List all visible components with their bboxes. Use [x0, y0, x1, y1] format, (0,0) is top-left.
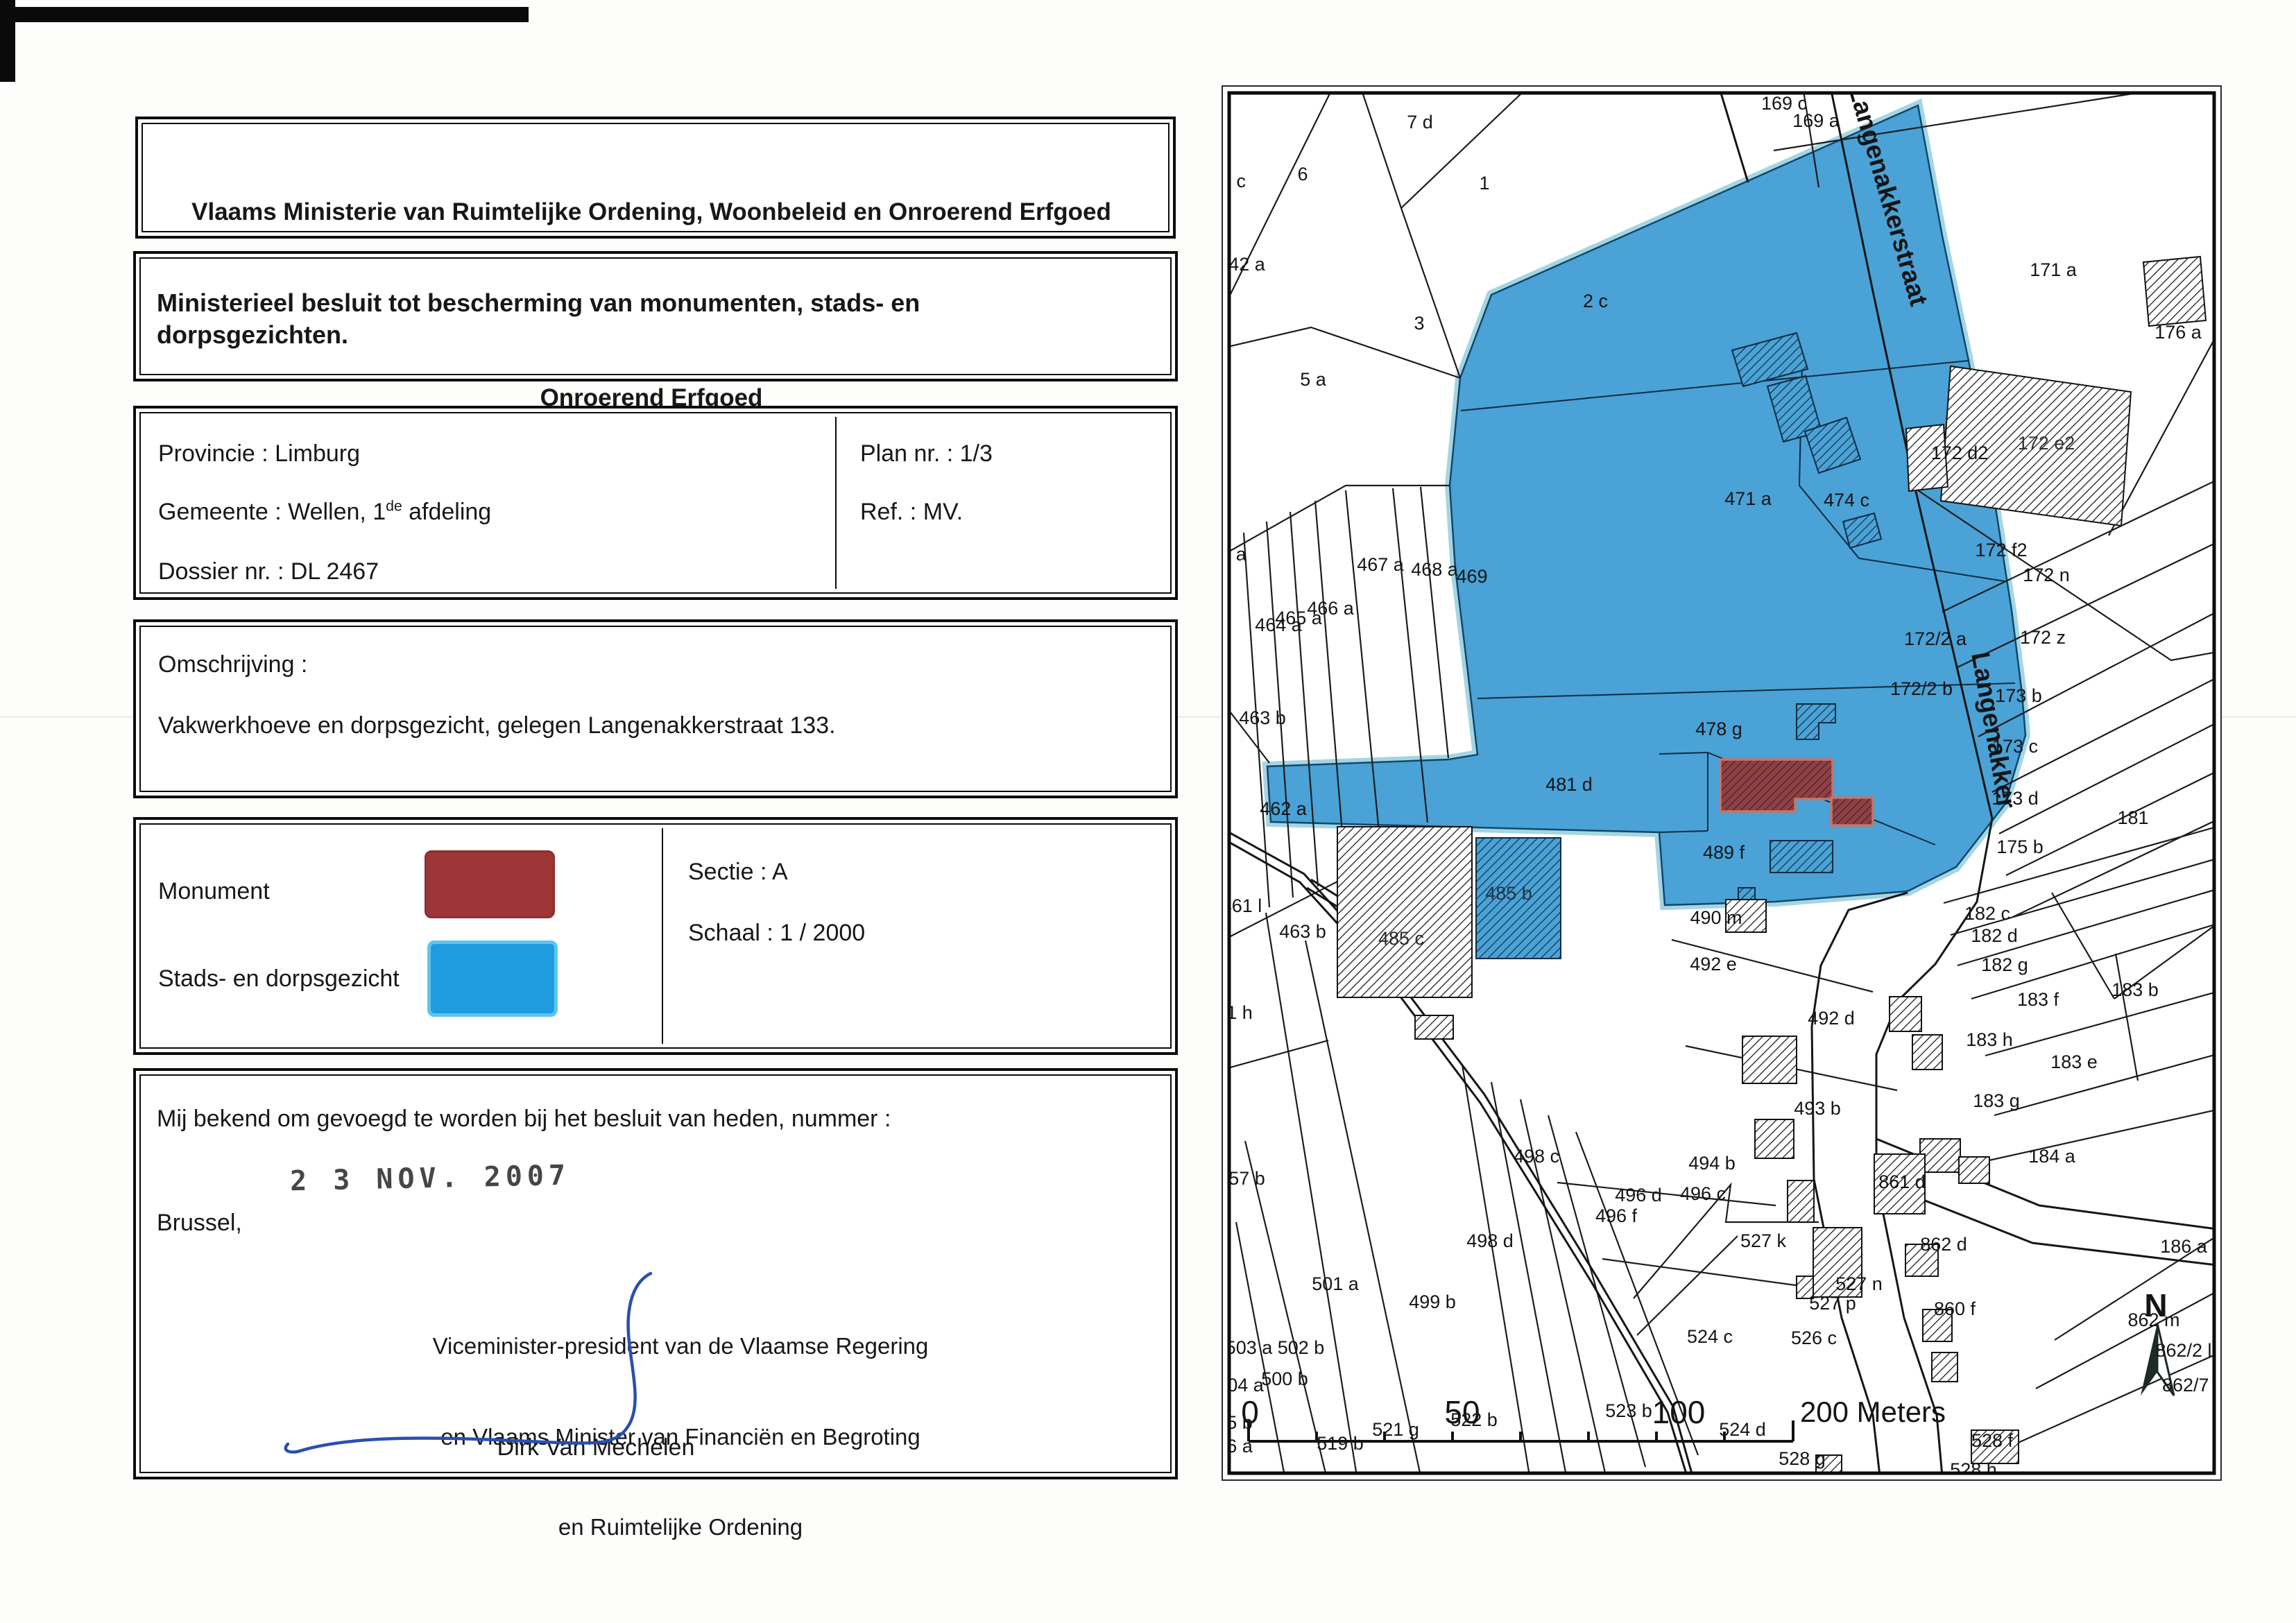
svg-text:183 e: 183 e: [2050, 1051, 2098, 1072]
building: [2143, 257, 2206, 326]
building: [1415, 1015, 1453, 1039]
svg-text:172/2 b: 172/2 b: [1890, 678, 1953, 699]
svg-text:169 a: 169 a: [1792, 110, 1840, 131]
svg-text:N: N: [2144, 1287, 2167, 1323]
svg-text:200 Meters: 200 Meters: [1800, 1396, 1946, 1428]
svg-text:183 g: 183 g: [1973, 1090, 2020, 1111]
building: [1742, 1036, 1797, 1083]
svg-text:5 a: 5 a: [1300, 369, 1327, 390]
svg-text:496 d: 496 d: [1615, 1185, 1662, 1205]
svg-text:182 g: 182 g: [1981, 954, 2028, 975]
svg-text:182 d: 182 d: [1971, 925, 2018, 946]
svg-text:7 d: 7 d: [1407, 112, 1433, 132]
svg-text:500 b: 500 b: [1261, 1368, 1308, 1389]
building: [1932, 1352, 1957, 1382]
svg-text:503 a 502 b: 503 a 502 b: [1226, 1337, 1325, 1358]
svg-text:528 f: 528 f: [1971, 1430, 2014, 1451]
svg-text:485 b: 485 b: [1485, 883, 1532, 904]
svg-text:172/2 a: 172/2 a: [1904, 628, 1967, 649]
svg-text:172 f2: 172 f2: [1975, 540, 2027, 560]
cadastral-map-svg: 7 d61141 c142 a5 a32 c169 c169 a171 a176…: [0, 0, 2296, 1623]
svg-text:521 g: 521 g: [1372, 1419, 1419, 1440]
svg-text:861 d: 861 d: [1878, 1171, 1926, 1192]
svg-text:474 c: 474 c: [1824, 490, 1869, 510]
svg-text:862/2 l: 862/2 l: [2155, 1340, 2211, 1361]
building: [1890, 997, 1921, 1031]
svg-text:527 p: 527 p: [1809, 1293, 1856, 1314]
building: [1788, 1180, 1814, 1222]
svg-text:860 f: 860 f: [1934, 1298, 1976, 1319]
cadastral-map: 7 d61141 c142 a5 a32 c169 c169 a171 a176…: [0, 0, 2296, 1623]
svg-text:499 b: 499 b: [1409, 1291, 1456, 1312]
svg-text:498 d: 498 d: [1466, 1230, 1514, 1251]
svg-text:478 g: 478 g: [1695, 719, 1742, 739]
svg-text:490 m: 490 m: [1690, 907, 1742, 928]
svg-text:183 b: 183 b: [2111, 979, 2159, 1000]
svg-text:523 b: 523 b: [1605, 1400, 1652, 1421]
building: [1755, 1119, 1794, 1158]
svg-text:485 c: 485 c: [1378, 928, 1424, 949]
building: [1920, 1139, 1960, 1172]
svg-text:2 c: 2 c: [1583, 291, 1608, 311]
building: [1959, 1157, 1989, 1183]
svg-text:462 a: 462 a: [1260, 798, 1308, 819]
svg-text:494 b: 494 b: [1688, 1153, 1736, 1174]
svg-text:492 e: 492 e: [1690, 954, 1737, 974]
svg-text:496 c: 496 c: [1680, 1183, 1726, 1204]
svg-text:498 c: 498 c: [1514, 1146, 1559, 1167]
svg-text:186 a: 186 a: [2160, 1236, 2208, 1257]
svg-text:172 d2: 172 d2: [1931, 443, 1989, 463]
svg-text:489 f: 489 f: [1703, 842, 1745, 863]
svg-text:100: 100: [1652, 1394, 1706, 1430]
svg-text:183 h: 183 h: [1966, 1029, 2013, 1050]
svg-text:527 n: 527 n: [1835, 1273, 1883, 1294]
svg-text:1: 1: [1479, 173, 1489, 194]
svg-text:467 a: 467 a: [1357, 554, 1405, 575]
monument-building: [1831, 798, 1873, 825]
svg-text:6: 6: [1297, 164, 1308, 184]
svg-text:526 c: 526 c: [1791, 1328, 1837, 1348]
svg-text:172 n: 172 n: [2023, 565, 2070, 585]
svg-text:471 a: 471 a: [1724, 488, 1772, 509]
svg-text:528 g: 528 g: [1779, 1448, 1826, 1469]
svg-text:524 d: 524 d: [1719, 1419, 1766, 1440]
building: [1770, 841, 1833, 873]
svg-text:501 a: 501 a: [1312, 1273, 1360, 1294]
svg-text:181: 181: [2117, 807, 2148, 828]
svg-text:463 b: 463 b: [1279, 921, 1326, 942]
svg-text:184 a: 184 a: [2028, 1146, 2076, 1167]
svg-text:527 k: 527 k: [1740, 1230, 1787, 1251]
svg-text:172 z: 172 z: [2020, 627, 2066, 648]
svg-text:492 d: 492 d: [1808, 1008, 1855, 1029]
svg-text:496 f: 496 f: [1595, 1205, 1638, 1226]
svg-text:172 e2: 172 e2: [2018, 433, 2075, 454]
svg-text:862 d: 862 d: [1920, 1234, 1967, 1255]
svg-text:463 b: 463 b: [1239, 707, 1286, 728]
svg-text:468 a: 468 a: [1411, 559, 1459, 580]
svg-text:0: 0: [1241, 1394, 1259, 1430]
svg-text:519 b: 519 b: [1317, 1433, 1364, 1454]
scanned-decree-page: Vlaams Ministerie van Ruimtelijke Ordeni…: [0, 0, 2296, 1623]
svg-text:183 f: 183 f: [2017, 989, 2059, 1010]
svg-text:50: 50: [1444, 1394, 1480, 1430]
svg-text:176 a: 176 a: [2154, 322, 2202, 343]
svg-text:524 c: 524 c: [1687, 1326, 1733, 1347]
svg-text:481 d: 481 d: [1545, 774, 1593, 795]
building: [1912, 1035, 1942, 1070]
svg-text:3: 3: [1414, 313, 1424, 334]
svg-text:171 a: 171 a: [2030, 259, 2077, 280]
svg-text:182 c: 182 c: [1964, 903, 2010, 924]
svg-text:464 a: 464 a: [1255, 615, 1303, 635]
svg-text:469: 469: [1456, 566, 1487, 587]
svg-text:175 b: 175 b: [1996, 836, 2044, 857]
svg-text:493 b: 493 b: [1794, 1098, 1841, 1119]
building: [1337, 827, 1472, 997]
